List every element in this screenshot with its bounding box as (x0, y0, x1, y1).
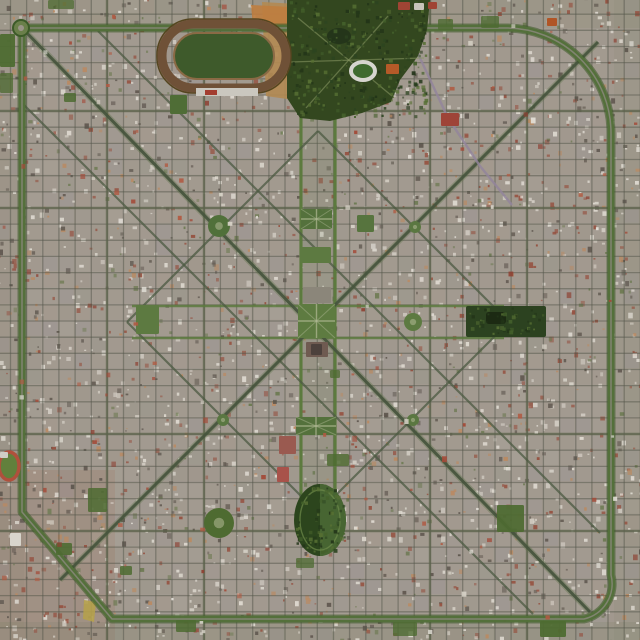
satellite-photo-frame (0, 0, 640, 640)
plaza-nw-block (170, 95, 187, 114)
plaza-west (136, 305, 159, 334)
park-stadium (351, 62, 375, 80)
aerial-satellite-image (0, 0, 640, 640)
plaza-northeast (357, 215, 374, 232)
plaza-north-1 (300, 247, 331, 263)
